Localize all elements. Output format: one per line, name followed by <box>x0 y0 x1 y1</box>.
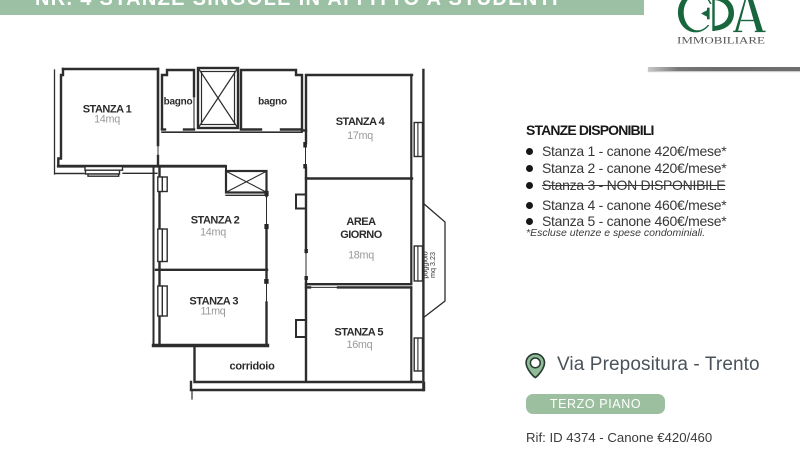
svg-text:11mq: 11mq <box>200 306 225 318</box>
svg-text:bagno: bagno <box>164 97 193 108</box>
svg-text:bagno: bagno <box>258 97 287 108</box>
svg-text:STANZA 2: STANZA 2 <box>191 215 240 227</box>
svg-text:mq 3.23: mq 3.23 <box>428 252 437 278</box>
svg-text:AREA: AREA <box>346 216 376 228</box>
svg-text:14mq: 14mq <box>94 114 120 126</box>
svg-text:16mq: 16mq <box>346 339 372 351</box>
svg-text:corridoio: corridoio <box>230 361 276 373</box>
svg-text:14mq: 14mq <box>200 227 226 239</box>
svg-text:17mq: 17mq <box>347 130 373 142</box>
svg-text:GIORNO: GIORNO <box>340 229 383 241</box>
svg-text:STANZA 5: STANZA 5 <box>334 326 383 338</box>
svg-text:STANZA 4: STANZA 4 <box>336 116 386 128</box>
svg-text:18mq: 18mq <box>348 250 374 262</box>
